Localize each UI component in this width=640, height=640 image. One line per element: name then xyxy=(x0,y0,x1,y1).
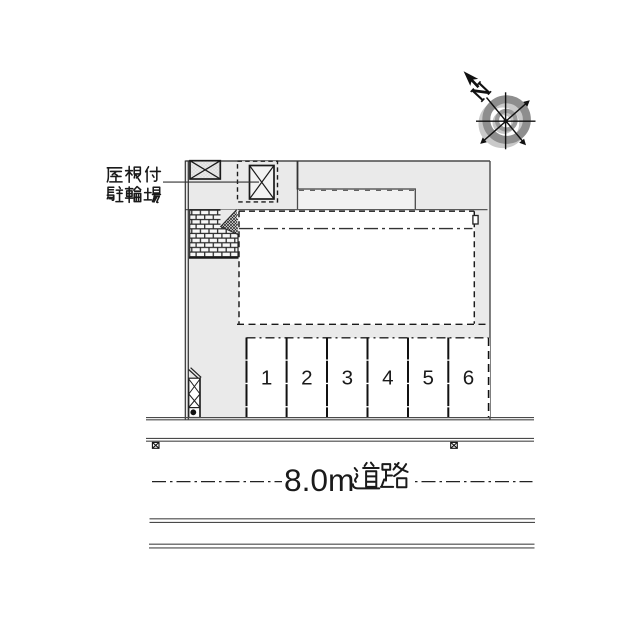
svg-text:6: 6 xyxy=(463,367,474,390)
svg-text:3: 3 xyxy=(342,367,353,390)
svg-text:1: 1 xyxy=(261,367,272,390)
svg-text:8.0m: 8.0m xyxy=(284,462,354,498)
svg-text:2: 2 xyxy=(301,367,312,390)
svg-text:4: 4 xyxy=(382,367,393,390)
svg-text:5: 5 xyxy=(422,367,433,390)
